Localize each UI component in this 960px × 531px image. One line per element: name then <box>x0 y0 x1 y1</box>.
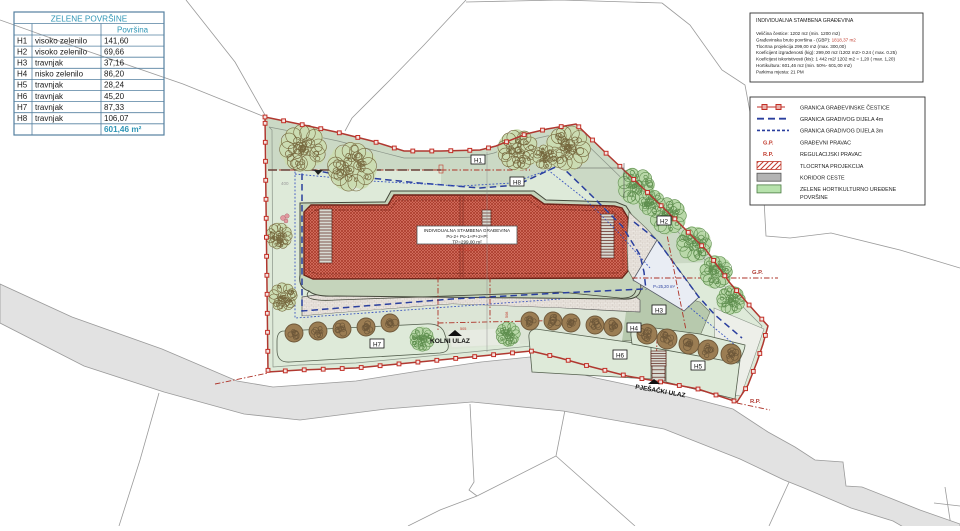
svg-text:H5: H5 <box>694 363 703 370</box>
svg-text:508: 508 <box>505 312 509 318</box>
svg-text:GRANICA GRADIVOG DIJELA 4m: GRANICA GRADIVOG DIJELA 4m <box>800 117 884 123</box>
svg-text:H3: H3 <box>655 307 664 314</box>
svg-text:GRANICA GRADIVOG DIJELA 3m: GRANICA GRADIVOG DIJELA 3m <box>800 129 884 135</box>
svg-text:nisko zelenilo: nisko zelenilo <box>35 70 84 79</box>
svg-text:GRANICA GRAĐEVINSKE ČESTICE: GRANICA GRAĐEVINSKE ČESTICE <box>800 104 890 111</box>
svg-text:travnjak: travnjak <box>35 92 64 101</box>
svg-text:Građevinska bruto površina - (: Građevinska bruto površina - (GBP): 1818… <box>756 37 856 42</box>
svg-text:H5: H5 <box>17 81 28 90</box>
svg-text:G.P.: G.P. <box>763 140 774 146</box>
svg-text:TLOCRTNA PROJEKCIJA: TLOCRTNA PROJEKCIJA <box>800 164 864 170</box>
svg-text:H8: H8 <box>17 114 28 123</box>
svg-text:H3: H3 <box>17 59 28 68</box>
svg-text:Površina: Površina <box>117 26 149 35</box>
svg-text:Koeficijest iskoristivosti (ki: Koeficijest iskoristivosti (kis): 1 442 … <box>756 57 895 62</box>
svg-text:GRAĐEVNI PRAVAC: GRAĐEVNI PRAVAC <box>800 140 851 146</box>
svg-text:TP=299,00 m²: TP=299,00 m² <box>452 239 482 244</box>
svg-text:H7: H7 <box>17 103 28 112</box>
svg-text:28,24: 28,24 <box>104 81 125 90</box>
svg-text:Veličina čestice: 1202 m2 (min: Veličina čestice: 1202 m2 (min. 1200 m2) <box>756 31 840 36</box>
svg-text:ZELENE POVRŠINE: ZELENE POVRŠINE <box>51 14 128 24</box>
svg-text:INDIVIDUALNA STAMBENA GRAĐEVIN: INDIVIDUALNA STAMBENA GRAĐEVINA <box>756 18 854 24</box>
svg-text:H4: H4 <box>17 70 28 79</box>
svg-text:R.P.: R.P. <box>763 152 774 158</box>
svg-text:69,66: 69,66 <box>104 47 125 56</box>
svg-text:P1=13,5 m: P1=13,5 m <box>457 247 478 252</box>
svg-text:travnjak: travnjak <box>35 103 64 112</box>
svg-text:R.P.: R.P. <box>750 399 761 405</box>
svg-text:37,16: 37,16 <box>104 59 125 68</box>
svg-text:86,20: 86,20 <box>104 70 125 79</box>
svg-text:Po-2+ Po-1+P+2+Pt: Po-2+ Po-1+P+2+Pt <box>446 234 488 239</box>
svg-text:travnjak: travnjak <box>35 81 64 90</box>
svg-text:ZELENE HORTIKULTURNO UREĐENE: ZELENE HORTIKULTURNO UREĐENE <box>800 187 897 193</box>
svg-text:106,07: 106,07 <box>104 114 129 123</box>
svg-text:45,20: 45,20 <box>104 92 125 101</box>
svg-text:601,46 m²: 601,46 m² <box>104 125 142 134</box>
svg-text:H2: H2 <box>17 47 28 56</box>
svg-text:H7: H7 <box>373 341 382 348</box>
svg-text:travnjak: travnjak <box>35 114 64 123</box>
svg-text:141,60: 141,60 <box>104 36 129 45</box>
svg-text:POVRŠINE: POVRŠINE <box>800 194 828 201</box>
svg-text:Tlocrtna projekcija 299,00 m2: Tlocrtna projekcija 299,00 m2 (max. 300,… <box>756 44 846 49</box>
svg-text:travnjak: travnjak <box>35 59 64 68</box>
svg-text:H2: H2 <box>660 218 669 225</box>
svg-text:Koeficijent izgrađenosti (kig): Koeficijent izgrađenosti (kig): 299,00 m… <box>756 50 897 55</box>
svg-text:P=25,20 m²: P=25,20 m² <box>653 284 675 289</box>
svg-text:H8: H8 <box>513 179 522 186</box>
svg-text:H6: H6 <box>17 92 28 101</box>
svg-text:visoko zelenilo: visoko zelenilo <box>35 47 88 56</box>
svg-text:400: 400 <box>281 181 289 186</box>
svg-text:KOLNI ULAZ: KOLNI ULAZ <box>430 338 470 345</box>
svg-text:505: 505 <box>460 327 466 331</box>
svg-text:H4: H4 <box>630 325 639 332</box>
svg-text:Parkirna mjesta: 21 PM: Parkirna mjesta: 21 PM <box>756 69 804 74</box>
svg-text:G.P.: G.P. <box>752 270 763 276</box>
svg-text:H1: H1 <box>17 36 28 45</box>
svg-text:H1: H1 <box>474 157 483 164</box>
svg-text:REGULACIJSKI PRAVAC: REGULACIJSKI PRAVAC <box>800 152 862 158</box>
svg-text:87,33: 87,33 <box>104 103 125 112</box>
svg-text:INDIVIDUALNA STAMBENA GRAĐEVIN: INDIVIDUALNA STAMBENA GRAĐEVINA <box>424 228 511 233</box>
svg-text:Hortikultura: 601,46 m2 (min.: Hortikultura: 601,46 m2 (min. 50%- 601,0… <box>756 63 852 68</box>
svg-text:visoko zelenilo: visoko zelenilo <box>35 36 88 45</box>
svg-text:H6: H6 <box>616 352 625 359</box>
svg-text:KORIDOR CESTE: KORIDOR CESTE <box>800 176 845 182</box>
